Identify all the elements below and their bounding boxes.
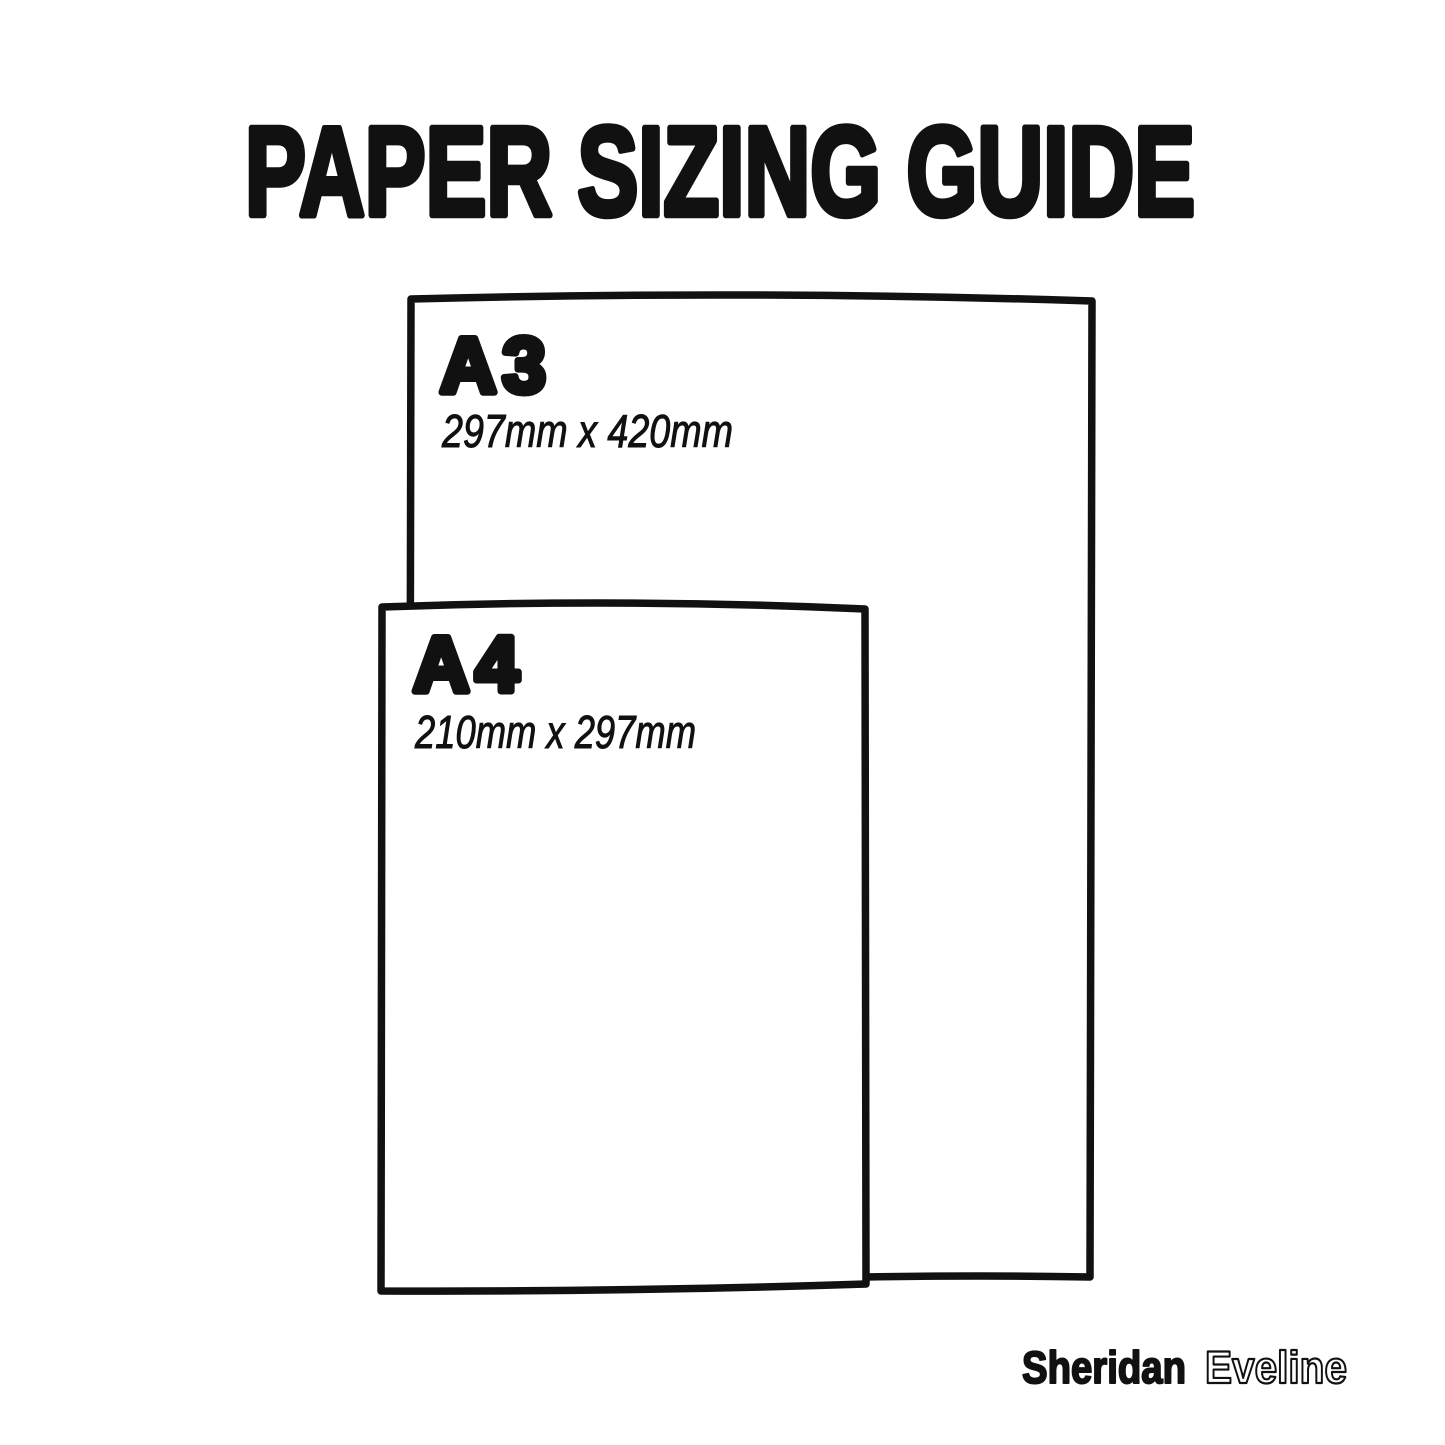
svg-text:Eveline: Eveline [1205, 1342, 1347, 1393]
svg-text:297mm x 420mm: 297mm x 420mm [441, 405, 733, 457]
svg-text:Sheridan: Sheridan [1022, 1342, 1186, 1393]
svg-text:PAPER SIZING GUIDE: PAPER SIZING GUIDE [245, 101, 1195, 242]
svg-text:A3: A3 [440, 321, 552, 409]
svg-text:210mm x 297mm: 210mm x 297mm [414, 706, 696, 758]
svg-text:A4: A4 [413, 620, 525, 708]
